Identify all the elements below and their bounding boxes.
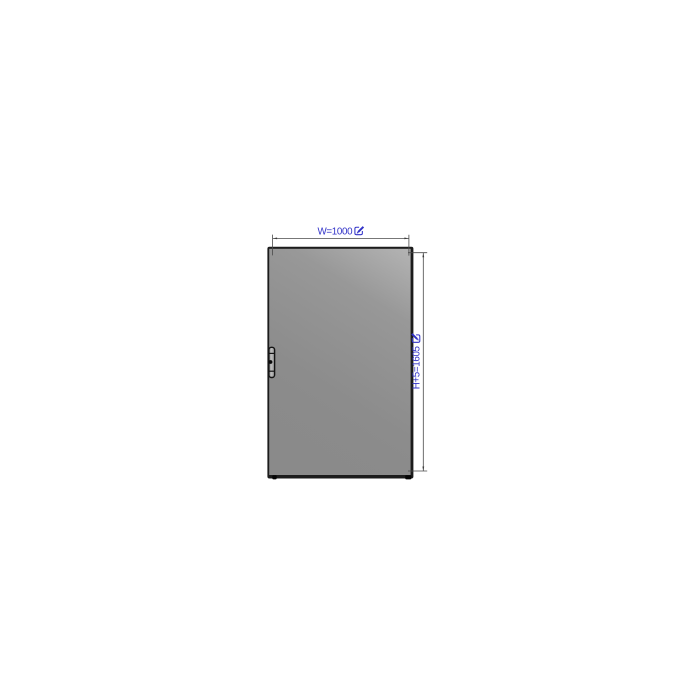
svg-text:H+5=1605: H+5=1605: [412, 345, 423, 389]
svg-text:W=1000: W=1000: [318, 227, 354, 238]
